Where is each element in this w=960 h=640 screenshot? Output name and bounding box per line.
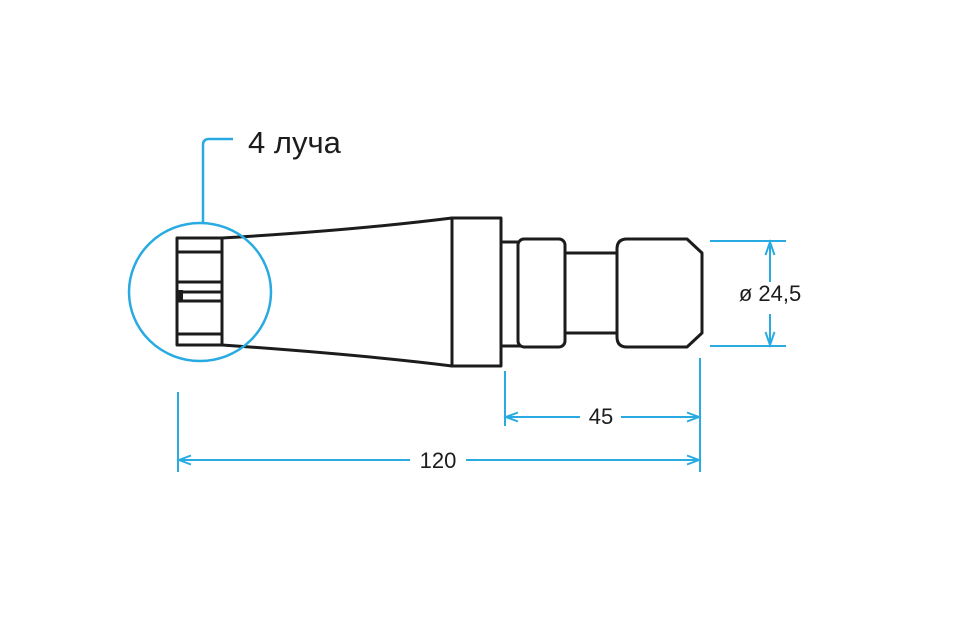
nozzle-dimension-drawing: 4 луча ø 24,5 45 [0, 0, 960, 640]
technical-drawing-canvas: 4 луча ø 24,5 45 [0, 0, 960, 640]
callout-label: 4 луча [248, 125, 342, 160]
diameter-value: ø 24,5 [739, 281, 801, 306]
part-outline [176, 218, 702, 366]
front-length-value: 45 [589, 404, 613, 429]
diameter-dimension: ø 24,5 [710, 241, 801, 346]
horn-body [222, 218, 452, 366]
collar [518, 239, 565, 347]
tip-slot-notch [176, 290, 183, 301]
end-cap [617, 239, 702, 347]
callout-leader-line [203, 139, 233, 222]
tip-with-rays [176, 238, 222, 345]
overall-length-dimension: 120 [178, 392, 699, 473]
flange [452, 218, 501, 366]
front-length-dimension: 45 [505, 358, 700, 472]
neck-large [561, 253, 623, 333]
overall-length-value: 120 [420, 448, 457, 473]
